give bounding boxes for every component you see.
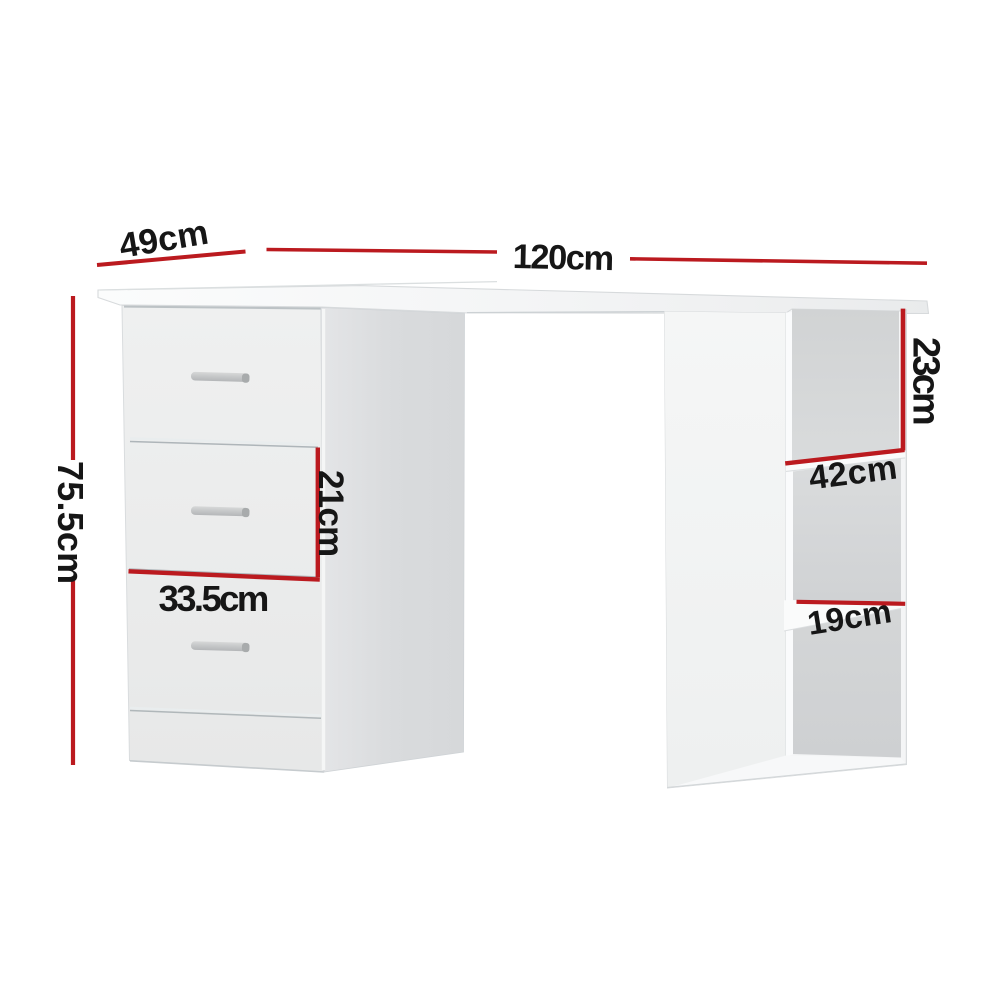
svg-text:23cm: 23cm: [905, 337, 947, 424]
svg-text:75.5cm: 75.5cm: [50, 461, 91, 584]
svg-text:33.5cm: 33.5cm: [159, 578, 268, 619]
svg-text:21cm: 21cm: [311, 470, 350, 556]
svg-text:120cm: 120cm: [512, 238, 613, 278]
